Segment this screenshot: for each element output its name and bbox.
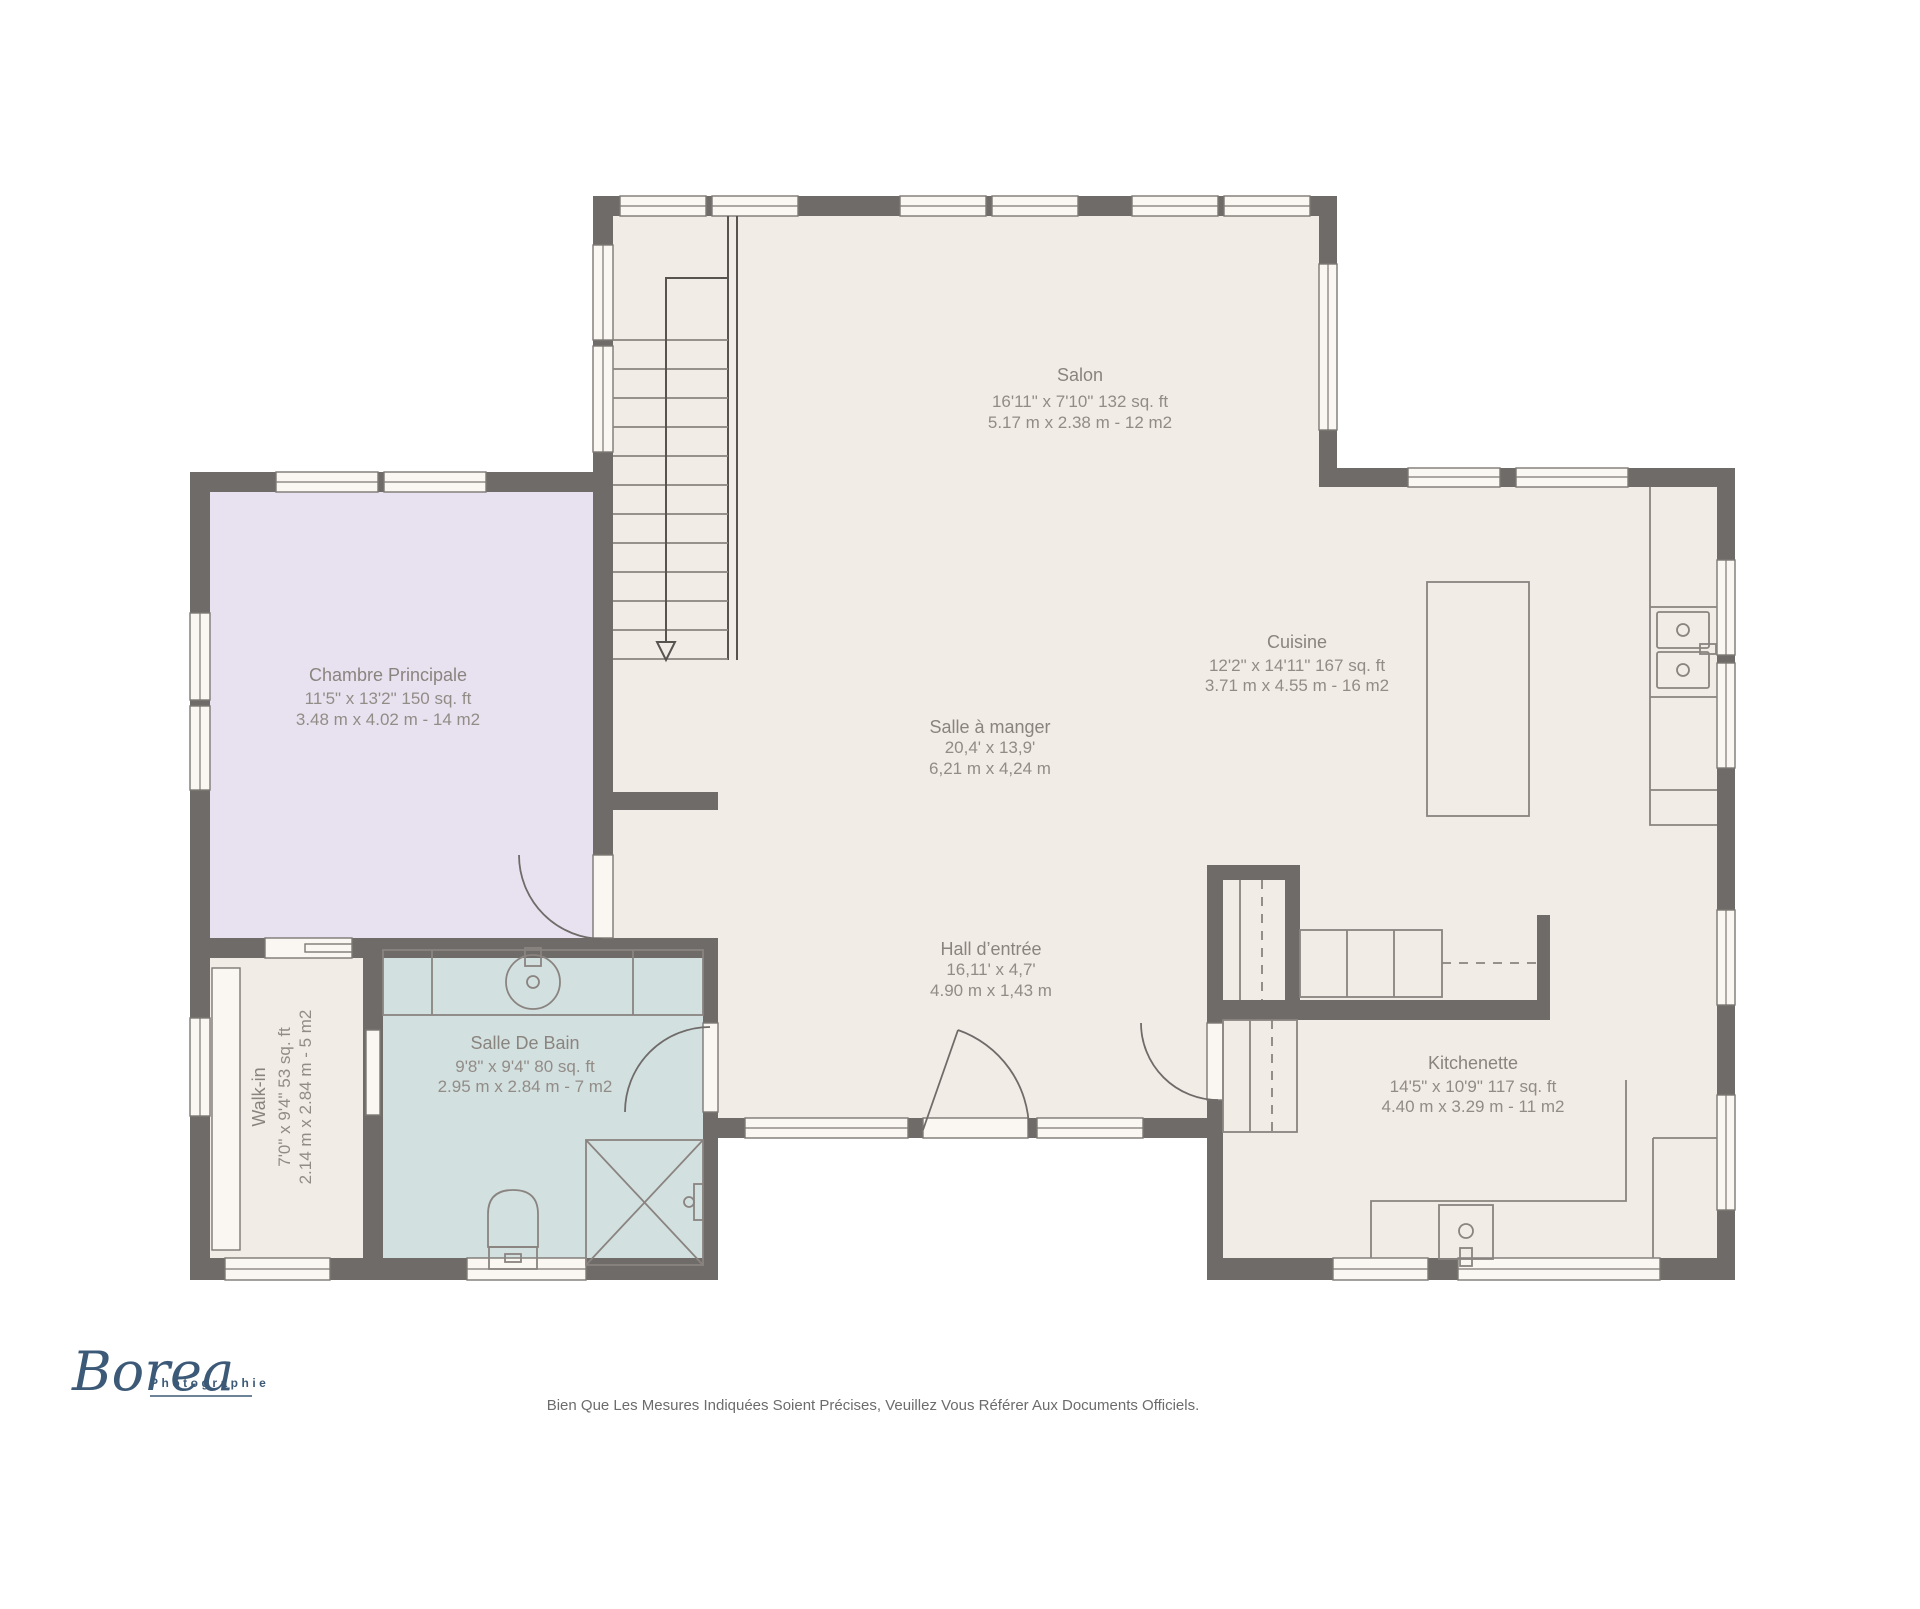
wall-mudroom-stub <box>1537 915 1550 1020</box>
kitchenette-dims-imperial: 14'5" x 10'9" 117 sq. ft <box>1390 1077 1557 1096</box>
salon-label: Salon <box>1057 365 1103 385</box>
bedroom-door-leaf <box>593 855 613 938</box>
kitchenette-dims-metric: 4.40 m x 3.29 m - 11 m2 <box>1382 1097 1565 1116</box>
wall-closet-right <box>1285 880 1300 1010</box>
walkin-dims-imperial: 7'0" x 9'4" 53 sq. ft <box>275 1027 294 1167</box>
salon-dims-metric: 5.17 m x 2.38 m - 12 m2 <box>988 413 1172 432</box>
walkin-shelf <box>212 968 240 1250</box>
closet-door-leaf <box>1207 1023 1223 1100</box>
bathroom-door-leaf <box>703 1023 718 1112</box>
chambre-dims-metric: 3.48 m x 4.02 m - 14 m2 <box>296 710 480 729</box>
walkin-bath-pocket-slot <box>366 1030 380 1115</box>
chambre-dims-imperial: 11'5" x 13'2" 150 sq. ft <box>305 689 472 708</box>
salon-dims-imperial: 16'11" x 7'10" 132 sq. ft <box>992 392 1168 411</box>
kitchenette-label: Kitchenette <box>1428 1053 1518 1073</box>
walkin-pocket-door-panel <box>305 944 352 952</box>
walkin-label: Walk-in <box>249 1067 269 1126</box>
salle-de-bain-dims-imperial: 9'8" x 9'4" 80 sq. ft <box>455 1057 595 1076</box>
cuisine-dims-metric: 3.71 m x 4.55 m - 16 m2 <box>1205 676 1389 695</box>
floor-plan-page: Salon 16'11" x 7'10" 132 sq. ft 5.17 m x… <box>0 0 1920 1609</box>
chambre-label: Chambre Principale <box>309 665 467 685</box>
salle-de-bain-label: Salle De Bain <box>470 1033 579 1053</box>
hall-dims-imperial: 16,11' x 4,7' <box>946 960 1035 979</box>
wall-mudroom <box>1207 1000 1550 1020</box>
salle-a-manger-label: Salle à manger <box>929 717 1050 737</box>
disclaimer-text: Bien Que Les Mesures Indiquées Soient Pr… <box>547 1397 1200 1414</box>
hall-dims-metric: 4.90 m x 1,43 m <box>930 981 1052 1000</box>
salle-a-manger-dims-metric: 6,21 m x 4,24 m <box>929 759 1051 778</box>
logo-tagline: Photographie <box>150 1376 269 1390</box>
salle-de-bain-dims-metric: 2.95 m x 2.84 m - 7 m2 <box>438 1077 613 1096</box>
wall-stair-stub <box>593 792 718 810</box>
hall-label: Hall d’entrée <box>940 939 1041 959</box>
wall-left <box>190 472 210 1280</box>
walkin-dims-metric: 2.14 m x 2.84 m - 5 m2 <box>296 1010 315 1185</box>
cuisine-label: Cuisine <box>1267 632 1327 652</box>
floor-plan-canvas: Salon 16'11" x 7'10" 132 sq. ft 5.17 m x… <box>0 0 1920 1609</box>
branding: Borea Photographie <box>71 1340 269 1403</box>
logo-wordmark: Borea <box>71 1340 234 1403</box>
salle-a-manger-dims-imperial: 20,4' x 13,9' <box>945 738 1036 757</box>
wall-closet-top-stub <box>1207 865 1300 880</box>
cuisine-dims-imperial: 12'2" x 14'11" 167 sq. ft <box>1209 656 1385 675</box>
entry-door-opening <box>923 1118 1028 1138</box>
